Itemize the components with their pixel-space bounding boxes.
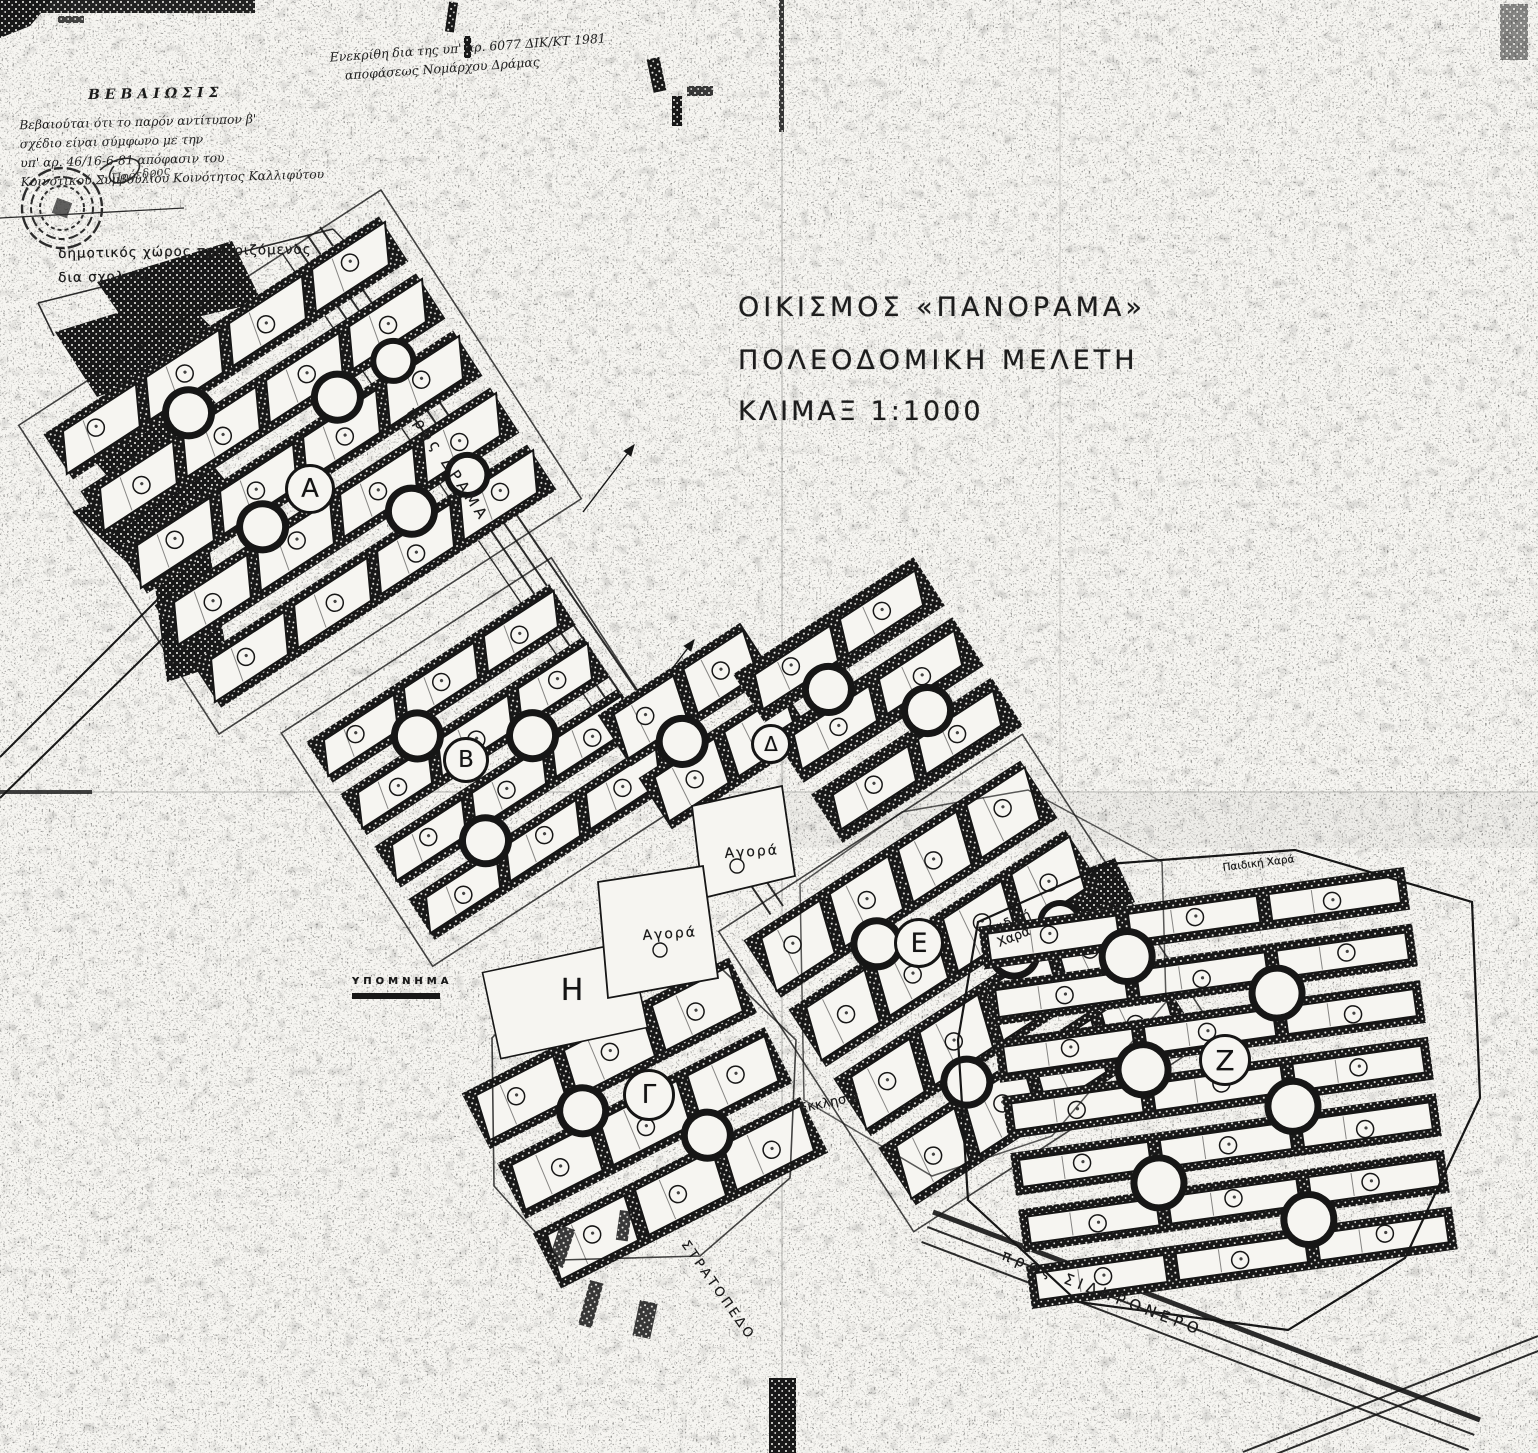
- block-letter-delta: Δ: [751, 724, 791, 764]
- roundabout: [1265, 1078, 1321, 1134]
- plan-subtitle: ΠΟΛΕΟΔΟΜΙΚΗ ΜΕΛΕΤΗ: [738, 345, 1146, 376]
- school-note-line-2: δια σχολείο: [58, 268, 148, 286]
- certification-text: Βεβαιούται ότι το παρόν αντίτυπον β' σχέ…: [19, 108, 341, 193]
- legend-title: ΥΠΟΜΝΗΜΑ: [352, 976, 453, 987]
- roundabout: [1131, 1155, 1187, 1211]
- block-letter-eta: Η: [550, 968, 594, 1012]
- block-letter-alpha: Α: [285, 464, 335, 514]
- plan-scale: ΚΛΙΜΑΞ 1:1000: [738, 396, 1146, 427]
- block-letter-beta: Β: [443, 737, 489, 783]
- roundabout: [1099, 928, 1155, 984]
- block-letter-gamma: Γ: [623, 1069, 675, 1121]
- fold-dark-top: [779, 0, 784, 132]
- roundabout: [1281, 1191, 1337, 1247]
- legend-bar: [352, 993, 440, 999]
- block-letter-epsilon: Ε: [894, 918, 944, 968]
- scanned-plan-page: Ενεκρίθη δια της υπ' αρ. 6077 ΔΙΚ/ΚΤ 198…: [0, 0, 1538, 1453]
- title-block: ΟΙΚΙΣΜΟΣ «ΠΑΝΟΡΑΜΑ» ΠΟΛΕΟΔΟΜΙΚΗ ΜΕΛΕΤΗ Κ…: [738, 292, 1146, 427]
- fold-dark-left: [0, 790, 92, 794]
- roundabout: [1115, 1041, 1171, 1097]
- fold-dark-bottom: [769, 1378, 796, 1453]
- plan-title: ΟΙΚΙΣΜΟΣ «ΠΑΝΟΡΑΜΑ»: [738, 292, 1146, 323]
- block-letter-zeta: Ζ: [1199, 1034, 1251, 1086]
- certification-title: ΒΕΒΑΙΩΣΙΣ: [88, 85, 224, 103]
- agora-lower-number-circle: [653, 943, 667, 957]
- roundabout: [1249, 965, 1305, 1021]
